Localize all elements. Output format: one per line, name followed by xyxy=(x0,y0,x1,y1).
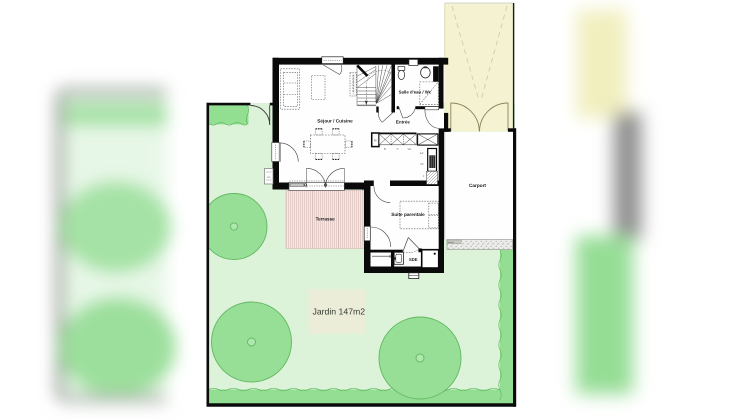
svg-text:SDE: SDE xyxy=(409,257,418,262)
svg-text:Carport: Carport xyxy=(469,183,486,188)
svg-text:Salle d'eau / Wc: Salle d'eau / Wc xyxy=(399,89,432,94)
svg-text:Suite parentale: Suite parentale xyxy=(391,212,425,217)
svg-text:acces: acces xyxy=(448,241,455,244)
svg-text:Séjour / Cuisine: Séjour / Cuisine xyxy=(317,118,353,123)
svg-text:VL: VL xyxy=(408,147,412,151)
svg-text:F: F xyxy=(397,147,399,151)
svg-text:VP: VP xyxy=(420,163,424,166)
svg-text:2m: 2m xyxy=(267,176,270,179)
svg-text:Jardin 147m2: Jardin 147m2 xyxy=(312,306,365,316)
svg-text:EV: EV xyxy=(420,152,424,155)
svg-text:Terrasse: Terrasse xyxy=(316,216,336,221)
svg-text:Entrée: Entrée xyxy=(396,119,411,124)
